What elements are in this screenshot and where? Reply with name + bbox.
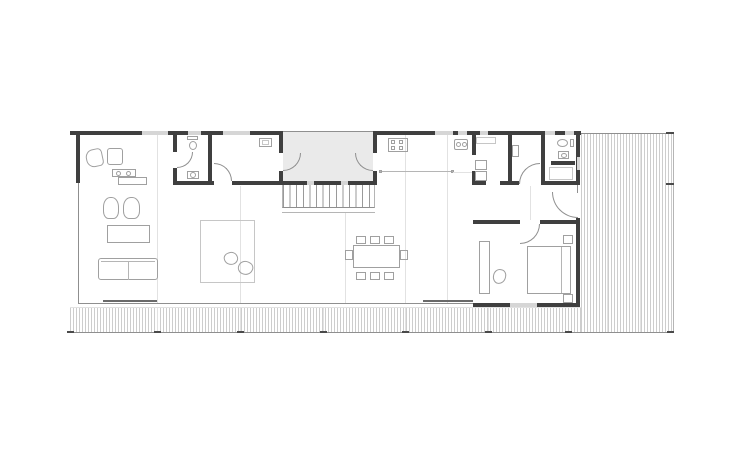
bedroom-bottom-window	[510, 303, 537, 307]
wall-bath1-right	[208, 131, 212, 185]
module-joint-6	[530, 186, 531, 220]
window-6	[480, 131, 488, 135]
window-7	[545, 131, 555, 135]
nightstand-b	[563, 294, 573, 303]
sink1-basin	[190, 172, 196, 178]
burner-4	[399, 146, 403, 150]
wall-porch-bottom	[279, 181, 377, 185]
sliding-door-track-dining	[423, 300, 473, 302]
tick-bottom-2	[154, 331, 161, 333]
tick-bottom-6	[485, 331, 492, 333]
staircase	[282, 185, 375, 208]
desk	[479, 241, 490, 294]
toilet2-bowl	[557, 139, 568, 147]
window-8	[565, 131, 574, 135]
deck-joint-1	[157, 308, 158, 332]
deck-bottom-top-edge	[70, 307, 581, 308]
wall-porch-left-a	[279, 131, 283, 153]
wall-laundry-bottom-b	[500, 181, 508, 185]
bed-headboard-line	[561, 247, 562, 293]
deck-joint-2	[240, 308, 241, 332]
wall-room2-bottom	[232, 181, 283, 185]
door-arc-deck	[552, 192, 578, 218]
entry-porch-top-edge	[283, 131, 373, 132]
tick-bottom-5	[402, 331, 409, 333]
deck-joint-3	[323, 308, 324, 332]
sliding-door-track-living	[103, 300, 157, 302]
wall-porch-right-a	[373, 131, 377, 153]
deck-right-hatch	[581, 133, 674, 333]
module-joint-4	[405, 135, 406, 303]
module-joint-5	[447, 135, 448, 303]
room2-wall-unit-inner	[262, 140, 269, 145]
wall-left	[76, 131, 80, 183]
nightstand-a	[563, 235, 573, 244]
lounge-chair-b	[123, 197, 140, 219]
deck-right-top-edge	[581, 133, 674, 134]
glass-facade-bottom	[78, 303, 473, 304]
wall-bath2-bottom	[541, 181, 576, 185]
tick-bottom-1	[67, 331, 74, 333]
wall-bedroom-bottom-b	[537, 303, 576, 307]
wall-bedroom-top-a	[473, 220, 520, 224]
tick-bottom-7	[565, 331, 572, 333]
burner-2	[399, 140, 403, 144]
dining-table	[353, 245, 400, 268]
wall-bath2-stub	[551, 161, 575, 165]
island-sink-b	[126, 171, 131, 176]
deck-right-joint-2	[640, 134, 641, 332]
lounge-chair-a	[103, 197, 119, 219]
wall-laundry-bottom-a	[473, 181, 486, 185]
shower	[549, 167, 573, 180]
window-2	[188, 131, 201, 135]
toilet1-bowl	[189, 141, 197, 150]
deck-joint-5	[488, 308, 489, 332]
tick-bottom-8	[667, 331, 674, 333]
kitchen-sink-basin-a	[456, 142, 461, 147]
tick-bottom-4	[320, 331, 327, 333]
counter-dot-a	[379, 170, 382, 173]
door-arc-room2	[214, 163, 232, 181]
sink3-basin	[561, 153, 567, 158]
hall-cabinet	[512, 145, 519, 157]
dining-chair-top-1	[356, 236, 366, 244]
wall-hall-bottom-stub	[508, 181, 519, 185]
wall-bath1-bottom	[173, 181, 214, 185]
window-3	[223, 131, 250, 135]
door-arc-bath1	[177, 152, 193, 168]
wall-right-lower	[576, 218, 580, 307]
kitchen-sink-basin-b	[462, 142, 467, 147]
burner-1	[391, 140, 395, 144]
deck-right-joint-1	[607, 134, 608, 332]
tick-bottom-3	[237, 331, 244, 333]
kitchen-counter-line	[380, 171, 453, 172]
dining-chair-right	[400, 250, 408, 260]
dining-chair-bottom-3	[384, 272, 394, 280]
deck-right-right-edge	[673, 133, 674, 333]
wall-laundry-right	[508, 131, 512, 185]
wall-bath1-left-a	[173, 131, 177, 152]
wall-bedroom-bottom-a	[473, 303, 510, 307]
kitchen-island-table	[118, 177, 147, 185]
staircase-landing-line	[282, 212, 375, 213]
toilet1-tank	[187, 136, 198, 140]
floor-plan-canvas	[0, 0, 750, 470]
dining-chair-bottom-1	[356, 272, 366, 280]
wall-bath2-left	[541, 131, 545, 185]
glass-facade-left	[78, 183, 79, 303]
tick-deck-right-mid	[666, 183, 674, 185]
armchair-corner-b	[107, 148, 123, 165]
window-5	[458, 131, 467, 135]
toilet2-tank	[570, 139, 574, 147]
window-right-wall	[577, 157, 580, 170]
dining-chair-top-3	[384, 236, 394, 244]
dining-chair-bottom-2	[370, 272, 380, 280]
door-arc-hall	[519, 163, 540, 184]
door-arc-bedroom	[520, 224, 540, 244]
coffee-table	[107, 225, 150, 243]
porch-bottom-glass-b	[341, 181, 348, 185]
laundry-unit-a	[475, 160, 487, 170]
deck-bottom-hatch	[70, 307, 581, 333]
bed	[527, 246, 571, 294]
laundry-shelf	[476, 137, 496, 144]
sofa-divider	[128, 261, 129, 280]
tick-deck-right-top	[666, 132, 674, 134]
counter-line-ext	[453, 172, 472, 173]
dining-chair-left	[345, 250, 353, 260]
deck-joint-4	[405, 308, 406, 332]
desk-chair	[492, 268, 508, 285]
armchair-corner-a	[84, 147, 104, 168]
burner-3	[391, 146, 395, 150]
window-1	[142, 131, 168, 135]
island-sink-a	[116, 171, 121, 176]
porch-bottom-glass-a	[307, 181, 314, 185]
window-4	[435, 131, 453, 135]
laundry-unit-b	[475, 171, 487, 181]
dining-chair-top-2	[370, 236, 380, 244]
wall-bedroom-top-b	[540, 220, 576, 224]
